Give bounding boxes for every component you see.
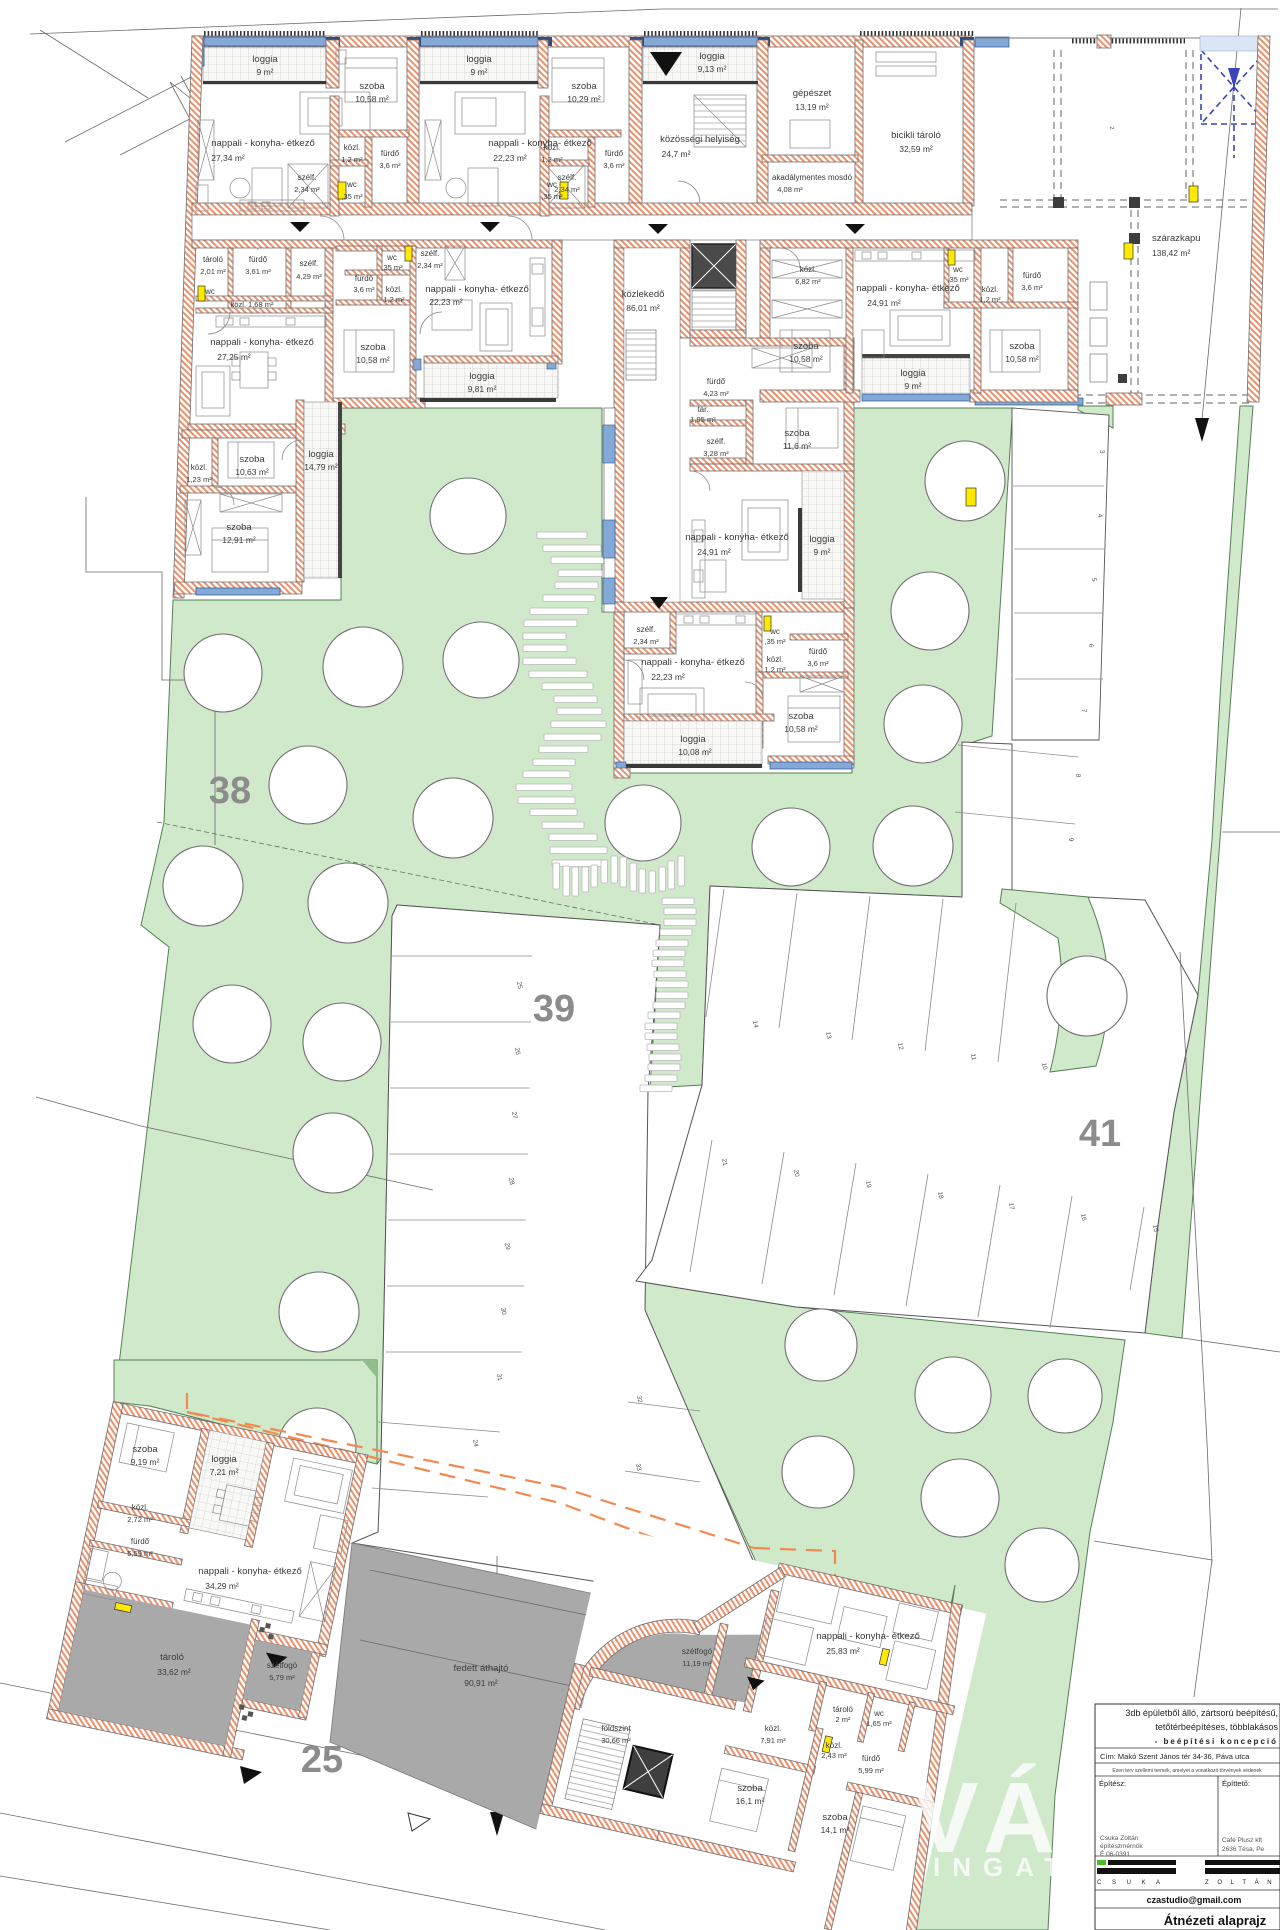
svg-text:loggia: loggia <box>900 368 926 379</box>
svg-text:loggia: loggia <box>252 54 278 65</box>
svg-text:34,29 m²: 34,29 m² <box>205 1581 239 1591</box>
svg-text:loggia: loggia <box>211 1454 237 1465</box>
svg-text:fürdő: fürdő <box>707 377 726 386</box>
svg-text:közlekedő: közlekedő <box>622 289 665 300</box>
svg-text:3db épületből álló, zártsorú b: 3db épületből álló, zártsorú beépítésű, <box>1125 1708 1278 1718</box>
svg-text:közösségi helyiség: közösségi helyiség <box>660 134 740 145</box>
svg-text:wc: wc <box>204 287 215 296</box>
svg-text:nappali - konyha- étkező: nappali - konyha- étkező <box>856 283 960 294</box>
svg-text:10,58 m²: 10,58 m² <box>789 354 823 364</box>
svg-text:bicikli tároló: bicikli tároló <box>891 130 941 141</box>
svg-text:10,29 m²: 10,29 m² <box>567 94 601 104</box>
svg-text:Építtető:: Építtető: <box>1222 1779 1250 1788</box>
svg-text:,35 m²: ,35 m² <box>541 192 563 201</box>
svg-text:9 m²: 9 m² <box>905 381 922 391</box>
svg-text:9,81 m²: 9,81 m² <box>468 384 497 394</box>
svg-text:3,6 m²: 3,6 m² <box>379 161 401 170</box>
svg-text:fürdő: fürdő <box>862 1754 881 1763</box>
svg-text:közl.: közl. <box>767 655 783 664</box>
svg-text:11,19 m²: 11,19 m² <box>682 1659 712 1668</box>
svg-text:10,58 m²: 10,58 m² <box>1005 354 1039 364</box>
svg-text:33,62 m²: 33,62 m² <box>157 1667 191 1677</box>
svg-text:nappali - konyha- étkező: nappali - konyha- étkező <box>425 284 529 295</box>
svg-text:5,99 m²: 5,99 m² <box>858 1766 884 1775</box>
svg-text:szélf.: szélf. <box>637 625 656 634</box>
svg-text:közl.: közl. <box>544 143 560 152</box>
svg-text:loggia: loggia <box>466 54 492 65</box>
svg-text:fürdő: fürdő <box>809 647 828 656</box>
svg-text:wc: wc <box>386 253 397 262</box>
svg-text:,35 m²: ,35 m² <box>341 192 363 201</box>
svg-text:41: 41 <box>1079 1113 1121 1155</box>
svg-text:nappali - konyha- étkező: nappali - konyha- étkező <box>198 1566 302 1577</box>
svg-text:loggia: loggia <box>680 734 706 745</box>
svg-text:Cím: Makó Szent János tér 34-3: Cím: Makó Szent János tér 34-36, Páva ut… <box>1100 1752 1250 1761</box>
svg-text:loggia: loggia <box>809 534 835 545</box>
svg-text:tároló: tároló <box>833 1705 854 1714</box>
svg-text:2,43 m²: 2,43 m² <box>821 1751 847 1760</box>
svg-text:9,13 m²: 9,13 m² <box>698 64 727 74</box>
svg-text:9 m²: 9 m² <box>471 67 488 77</box>
svg-text:nappali - konyha- étkező: nappali - konyha- étkező <box>211 138 315 149</box>
svg-text:szétfogó: szétfogó <box>682 1647 713 1656</box>
svg-text:szétfogó: szétfogó <box>267 1661 298 1670</box>
svg-text:10,58 m²: 10,58 m² <box>355 94 389 104</box>
svg-text:3,6 m²: 3,6 m² <box>603 161 625 170</box>
svg-text:tár.: tár. <box>697 405 708 414</box>
svg-text:Z O L T Á N: Z O L T Á N <box>1205 1879 1275 1886</box>
svg-text:86,01 m²: 86,01 m² <box>626 303 660 313</box>
svg-text:4,08 m²: 4,08 m² <box>777 185 803 194</box>
svg-text:5,79 m²: 5,79 m² <box>269 1673 295 1682</box>
svg-text:nappali - konyha- étkező: nappali - konyha- étkező <box>641 657 745 668</box>
svg-text:38: 38 <box>209 770 251 812</box>
svg-text:2 m²: 2 m² <box>836 1715 852 1724</box>
svg-text:szoba: szoba <box>239 454 265 465</box>
svg-text:1,2 m²: 1,2 m² <box>764 665 786 674</box>
svg-text:14,1 m²: 14,1 m² <box>821 1825 850 1835</box>
svg-text:3,6 m²: 3,6 m² <box>807 659 829 668</box>
svg-text:tároló: tároló <box>203 255 224 264</box>
svg-text:szoba: szoba <box>793 341 819 352</box>
svg-text:fürdő: fürdő <box>355 274 374 283</box>
svg-text:Átnézeti alaprajz: Átnézeti alaprajz <box>1164 1913 1267 1928</box>
svg-text:4,29 m²: 4,29 m² <box>296 272 322 281</box>
svg-text:3,61 m²: 3,61 m² <box>245 267 271 276</box>
svg-text:30,66 m²: 30,66 m² <box>601 1736 631 1745</box>
svg-text:12,91 m²: 12,91 m² <box>222 535 256 545</box>
svg-text:szoba: szoba <box>571 81 597 92</box>
svg-text:Café Plusz kft: Café Plusz kft <box>1222 1837 1262 1844</box>
svg-text:10,63 m²: 10,63 m² <box>235 467 269 477</box>
svg-text:27,25 m²: 27,25 m² <box>217 352 251 362</box>
svg-text:1,2 m²: 1,2 m² <box>383 295 405 304</box>
svg-text:wc: wc <box>769 627 780 636</box>
svg-text:közl. 1,68 m²: közl. 1,68 m² <box>231 300 274 309</box>
svg-text:2,72 m²: 2,72 m² <box>127 1515 153 1524</box>
svg-text:szárazkapu: szárazkapu <box>1152 233 1201 244</box>
svg-text:tároló: tároló <box>160 1652 184 1663</box>
svg-text:nappali - konyha- étkező: nappali - konyha- étkező <box>210 337 314 348</box>
svg-text:szoba: szoba <box>784 428 810 439</box>
svg-text:22,23 m²: 22,23 m² <box>651 672 685 682</box>
svg-text:6,82 m²: 6,82 m² <box>795 277 821 286</box>
svg-text:9,19 m²: 9,19 m² <box>131 1457 160 1467</box>
svg-text:loggia: loggia <box>469 371 495 382</box>
svg-text:1,23 m²: 1,23 m² <box>186 475 212 484</box>
svg-text:24,91 m²: 24,91 m² <box>867 298 901 308</box>
svg-text:földszint: földszint <box>601 1724 631 1733</box>
svg-text:4,23 m²: 4,23 m² <box>703 389 729 398</box>
svg-text:szélf.: szélf. <box>707 437 726 446</box>
svg-text:szélf.: szélf. <box>421 249 440 258</box>
svg-text:szélf.: szélf. <box>300 259 319 268</box>
svg-text:1,65 m²: 1,65 m² <box>866 1719 892 1728</box>
svg-text:138,42 m²: 138,42 m² <box>1152 248 1190 258</box>
svg-text:fedett áthajtó: fedett áthajtó <box>454 1663 509 1674</box>
svg-text:Ezen terv szellemi termék, ame: Ezen terv szellemi termék, amelyet a von… <box>1112 1768 1262 1774</box>
svg-text:2,34 m²: 2,34 m² <box>417 261 443 270</box>
svg-text:szoba: szoba <box>822 1812 848 1823</box>
svg-text:2636 Tésa, Pe: 2636 Tésa, Pe <box>1222 1846 1265 1853</box>
svg-text:1,95 m²: 1,95 m² <box>690 415 716 424</box>
svg-text:3,6 m²: 3,6 m² <box>1021 283 1043 292</box>
svg-text:14,79 m²: 14,79 m² <box>304 462 338 472</box>
svg-text:szoba: szoba <box>226 522 252 533</box>
svg-text:- beépítési koncepció: - beépítési koncepció <box>1155 1737 1278 1746</box>
svg-text:16,1 m²: 16,1 m² <box>736 1796 765 1806</box>
svg-text:fürdő: fürdő <box>1023 271 1042 280</box>
svg-text:szoba: szoba <box>1009 341 1035 352</box>
svg-text:9 m²: 9 m² <box>814 547 831 557</box>
svg-text:wc: wc <box>952 265 963 274</box>
svg-text:fürdő: fürdő <box>131 1537 150 1546</box>
svg-text:10,58 m²: 10,58 m² <box>784 724 818 734</box>
svg-text:,35 m²: ,35 m² <box>764 637 786 646</box>
svg-text:32,59 m²: 32,59 m² <box>899 144 933 154</box>
svg-text:közl.: közl. <box>386 285 402 294</box>
svg-text:2,01 m²: 2,01 m² <box>200 267 226 276</box>
svg-text:akadálymentes mosdó: akadálymentes mosdó <box>772 173 853 182</box>
svg-text:24,91 m²: 24,91 m² <box>697 547 731 557</box>
svg-text:wc: wc <box>546 180 557 189</box>
svg-text:7,91 m²: 7,91 m² <box>760 1736 786 1745</box>
svg-text:fürdő: fürdő <box>381 149 400 158</box>
svg-text:közl.: közl. <box>800 265 816 274</box>
svg-text:tetőtérbeépítéses, többlakásos: tetőtérbeépítéses, többlakásos <box>1155 1722 1278 1732</box>
svg-text:90,91 m²: 90,91 m² <box>464 1678 498 1688</box>
svg-text:1,2 m²: 1,2 m² <box>341 155 363 164</box>
svg-text:3,6 m²: 3,6 m² <box>353 285 375 294</box>
svg-text:INGAT: INGAT <box>933 1852 1072 1882</box>
svg-text:13,19 m²: 13,19 m² <box>795 102 829 112</box>
svg-text:loggia: loggia <box>308 449 334 460</box>
svg-text:loggia: loggia <box>699 51 725 62</box>
svg-text:közl.: közl. <box>765 1724 781 1733</box>
svg-text:szoba: szoba <box>132 1444 158 1455</box>
svg-text:fürdő: fürdő <box>605 149 624 158</box>
svg-text:C S U K A: C S U K A <box>1097 1880 1165 1886</box>
svg-text:szoba: szoba <box>360 342 386 353</box>
svg-text:39: 39 <box>533 988 575 1030</box>
svg-text:szoba: szoba <box>737 1783 763 1794</box>
svg-text:9 m²: 9 m² <box>257 67 274 77</box>
svg-text:3,28 m²: 3,28 m² <box>703 449 729 458</box>
svg-text:Építész:: Építész: <box>1099 1779 1126 1788</box>
svg-text:közl.: közl. <box>191 463 207 472</box>
svg-text:szoba: szoba <box>788 711 814 722</box>
svg-text:közl.: közl. <box>826 1741 842 1750</box>
svg-text:szélf.: szélf. <box>298 173 317 182</box>
svg-text:É 06-0391: É 06-0391 <box>1100 1849 1130 1858</box>
svg-text:25,83 m²: 25,83 m² <box>826 1646 860 1656</box>
svg-text:építészmérnök: építészmérnök <box>1100 1843 1143 1850</box>
svg-text:wc: wc <box>873 1709 884 1718</box>
svg-text:22,23 m²: 22,23 m² <box>493 153 527 163</box>
svg-text:közl.: közl. <box>132 1503 148 1512</box>
svg-text:2,34 m²: 2,34 m² <box>294 185 320 194</box>
svg-text:2,34 m²: 2,34 m² <box>633 637 659 646</box>
svg-text:1,2 m²: 1,2 m² <box>541 155 563 164</box>
svg-text:11,6 m²: 11,6 m² <box>783 441 811 451</box>
svg-text:közl.: közl. <box>982 285 998 294</box>
svg-text:7,21 m²: 7,21 m² <box>210 1467 239 1477</box>
svg-text:10,08 m²: 10,08 m² <box>678 747 712 757</box>
svg-text:27,34 m²: 27,34 m² <box>211 153 245 163</box>
svg-text:közl.: közl. <box>344 143 360 152</box>
svg-text:fürdő: fürdő <box>249 255 268 264</box>
svg-text:5,59 m²: 5,59 m² <box>127 1549 153 1558</box>
svg-text:,35 m²: ,35 m² <box>381 263 403 272</box>
svg-text:nappali - konyha- étkező: nappali - konyha- étkező <box>685 532 789 543</box>
svg-text:22,23 m²: 22,23 m² <box>429 297 463 307</box>
svg-text:wc: wc <box>346 180 357 189</box>
svg-text:szoba: szoba <box>359 81 385 92</box>
svg-text:nappali - konyha- étkező: nappali - konyha- étkező <box>488 138 592 149</box>
svg-text:czastudio@gmail.com: czastudio@gmail.com <box>1147 1895 1242 1905</box>
svg-text:nappali - konyha- étkező: nappali - konyha- étkező <box>816 1631 920 1642</box>
svg-text:,35 m²: ,35 m² <box>947 275 969 284</box>
svg-text:10,58 m²: 10,58 m² <box>356 355 390 365</box>
svg-text:1,2 m²: 1,2 m² <box>979 295 1001 304</box>
svg-text:Csuka Zoltán: Csuka Zoltán <box>1100 1835 1139 1842</box>
svg-text:24,7 m²: 24,7 m² <box>662 149 691 159</box>
svg-text:szélf.: szélf. <box>558 173 577 182</box>
svg-text:gépészet: gépészet <box>793 88 832 99</box>
